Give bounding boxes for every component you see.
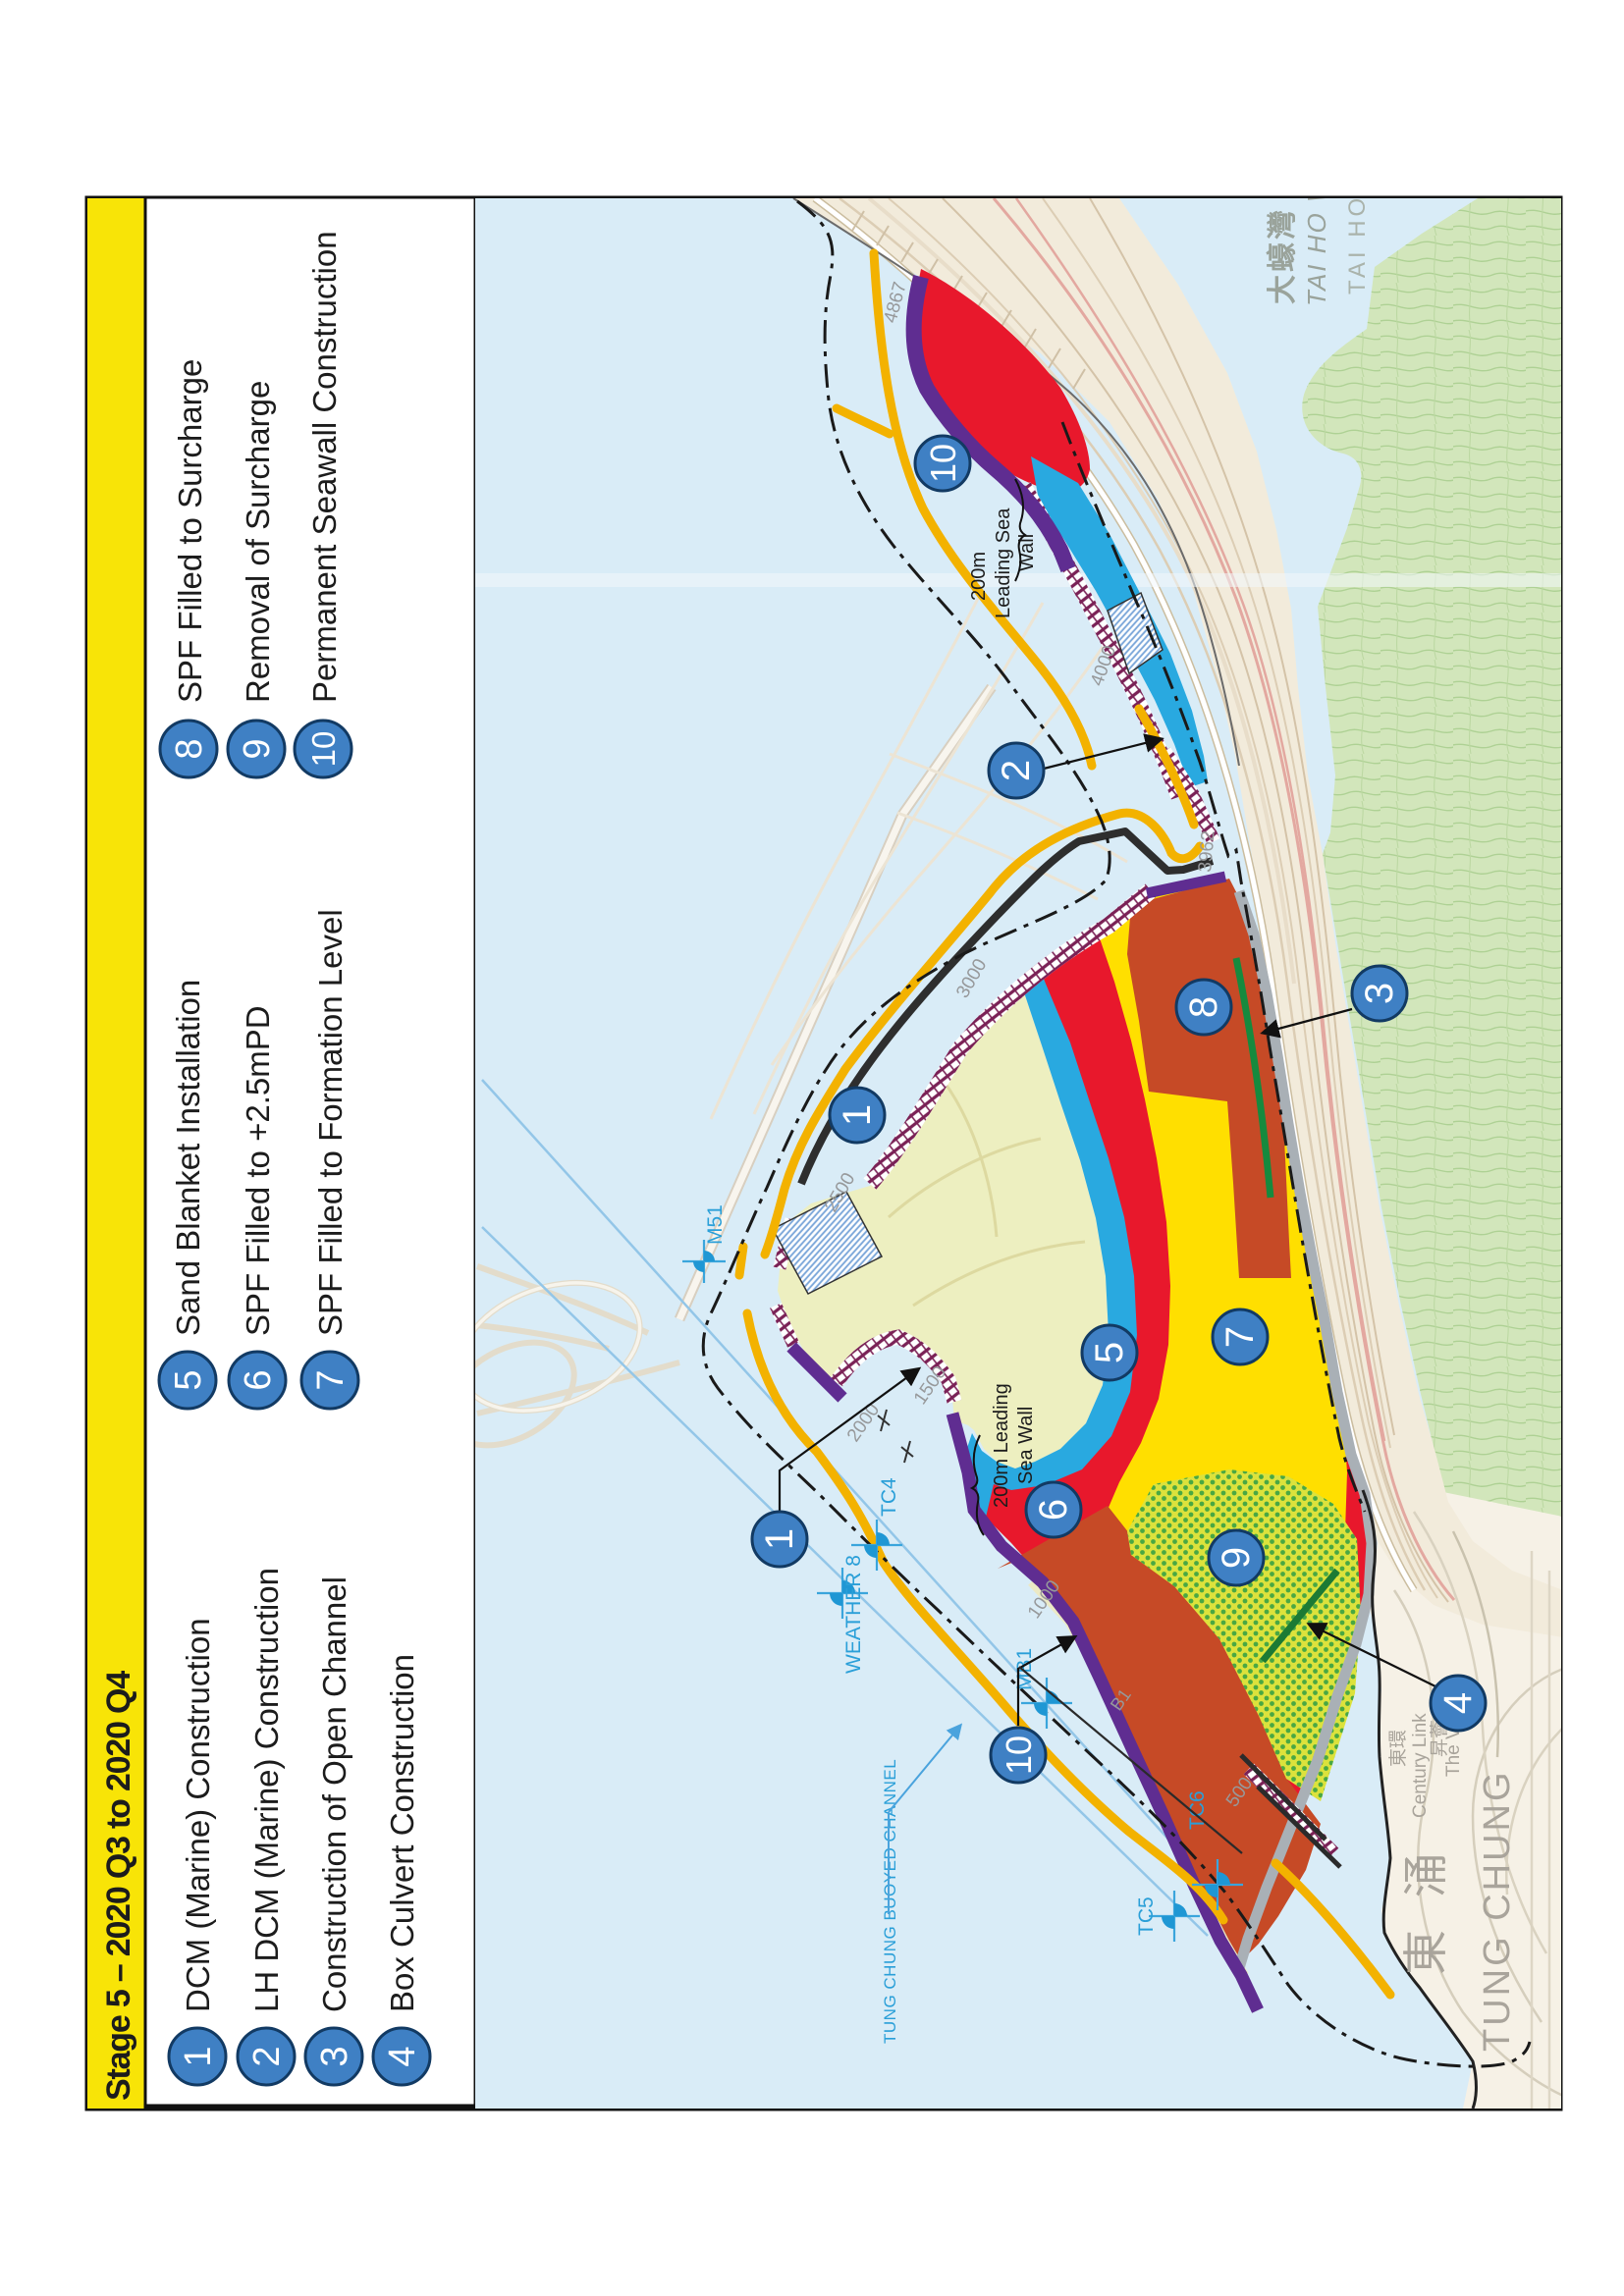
svg-text:M51: M51 bbox=[704, 1204, 727, 1245]
svg-text:WEATHER 8: WEATHER 8 bbox=[842, 1555, 865, 1674]
svg-text:東 涌: 東 涌 bbox=[1400, 1842, 1451, 1975]
svg-text:2: 2 bbox=[246, 2046, 288, 2066]
svg-text:8: 8 bbox=[169, 738, 210, 759]
svg-text:1: 1 bbox=[178, 2046, 219, 2066]
svg-text:LH DCM (Marine) Construction: LH DCM (Marine) Construction bbox=[248, 1568, 285, 2012]
svg-text:5: 5 bbox=[1088, 1342, 1131, 1363]
svg-text:7: 7 bbox=[1218, 1326, 1262, 1348]
svg-text:1: 1 bbox=[758, 1528, 801, 1550]
svg-text:6: 6 bbox=[1032, 1499, 1075, 1521]
svg-text:10: 10 bbox=[923, 444, 963, 483]
svg-text:TC5: TC5 bbox=[1135, 1896, 1158, 1936]
svg-text:TC4: TC4 bbox=[878, 1477, 900, 1517]
svg-text:東環: 東環 bbox=[1387, 1730, 1409, 1767]
svg-text:Sand Blanket Installation: Sand Blanket Installation bbox=[170, 980, 206, 1336]
svg-text:1: 1 bbox=[836, 1104, 879, 1126]
svg-text:Sea Wall: Sea Wall bbox=[1015, 1407, 1037, 1484]
svg-text:8: 8 bbox=[1182, 996, 1225, 1018]
svg-text:Century Link: Century Link bbox=[1410, 1713, 1431, 1818]
svg-text:3: 3 bbox=[314, 2046, 355, 2066]
svg-text:6: 6 bbox=[238, 1369, 279, 1390]
svg-text:3962: 3962 bbox=[1195, 829, 1219, 873]
svg-text:9: 9 bbox=[237, 738, 278, 759]
svg-text:SPF Filled to Formation Level: SPF Filled to Formation Level bbox=[312, 909, 349, 1336]
svg-text:大蠔灣: 大蠔灣 bbox=[1266, 207, 1299, 304]
svg-text:4: 4 bbox=[1436, 1692, 1480, 1714]
svg-text:Removal of Surcharge: Removal of Surcharge bbox=[240, 381, 276, 703]
svg-text:DCM (Marine) Construction: DCM (Marine) Construction bbox=[180, 1618, 216, 2012]
svg-text:4: 4 bbox=[382, 2046, 423, 2066]
svg-text:3: 3 bbox=[1358, 983, 1401, 1004]
svg-text:9: 9 bbox=[1215, 1547, 1258, 1569]
svg-text:200m Leading: 200m Leading bbox=[991, 1383, 1012, 1508]
svg-text:Stage 5 – 2020 Q3 to 2020 Q4: Stage 5 – 2020 Q3 to 2020 Q4 bbox=[100, 1671, 137, 2101]
svg-text:10: 10 bbox=[305, 731, 342, 768]
svg-text:Leading Sea: Leading Sea bbox=[993, 507, 1014, 618]
svg-text:Permanent Seawall Construction: Permanent Seawall Construction bbox=[306, 231, 343, 703]
svg-text:5: 5 bbox=[168, 1369, 209, 1390]
svg-text:Construction of Open Channel: Construction of Open Channel bbox=[316, 1576, 352, 2012]
svg-text:200m: 200m bbox=[968, 552, 990, 601]
svg-text:TUNG CHUNG: TUNG CHUNG bbox=[1477, 1769, 1518, 2052]
svg-text:Box Culvert Construction: Box Culvert Construction bbox=[384, 1654, 420, 2012]
svg-text:TAI HO: TAI HO bbox=[1344, 194, 1371, 294]
svg-text:MB1: MB1 bbox=[1013, 1648, 1036, 1690]
svg-text:10: 10 bbox=[999, 1735, 1039, 1775]
svg-text:7: 7 bbox=[310, 1369, 352, 1390]
svg-text:SPF Filled to Surcharge: SPF Filled to Surcharge bbox=[172, 359, 208, 703]
svg-text:SPF Filled to +2.5mPD: SPF Filled to +2.5mPD bbox=[240, 1005, 276, 1336]
svg-text:2: 2 bbox=[995, 760, 1038, 781]
